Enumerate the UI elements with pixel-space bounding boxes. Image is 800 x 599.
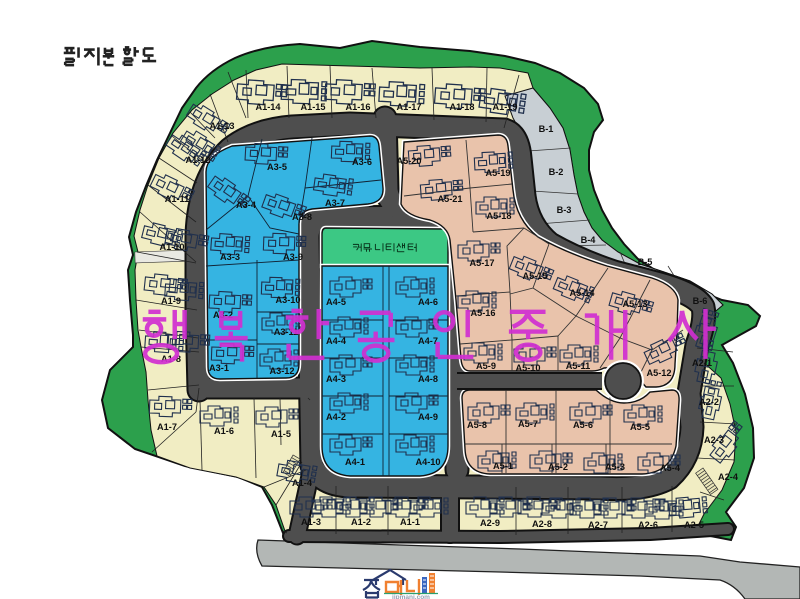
svg-text:A2-6: A2-6 [638, 520, 658, 530]
svg-text:A5-5: A5-5 [630, 422, 650, 432]
svg-text:A3-4: A3-4 [236, 200, 257, 210]
svg-text:A1-19: A1-19 [492, 102, 517, 112]
svg-text:A3-9: A3-9 [283, 252, 303, 262]
svg-text:A5-10: A5-10 [515, 363, 540, 373]
svg-text:A3-5: A3-5 [267, 162, 287, 172]
svg-text:A5-1: A5-1 [493, 461, 513, 471]
svg-text:A1-1: A1-1 [400, 517, 420, 527]
svg-text:A4-10: A4-10 [415, 457, 440, 467]
svg-text:A2-2: A2-2 [699, 397, 719, 407]
svg-text:A5-7: A5-7 [518, 419, 538, 429]
svg-text:A5-18: A5-18 [486, 211, 511, 221]
svg-text:A1-14: A1-14 [255, 102, 281, 112]
svg-text:B-1: B-1 [539, 124, 554, 134]
svg-text:A5-4: A5-4 [660, 463, 681, 473]
svg-text:A5-16: A5-16 [470, 308, 495, 318]
svg-text:A2-5: A2-5 [684, 520, 704, 530]
svg-text:A2-1: A2-1 [692, 358, 712, 368]
svg-text:A4-4: A4-4 [326, 336, 347, 346]
svg-text:A3-12: A3-12 [269, 366, 294, 376]
svg-text:A4-5: A4-5 [326, 297, 346, 307]
svg-text:B-5: B-5 [638, 257, 653, 267]
svg-text:A5-19: A5-19 [485, 168, 510, 178]
svg-text:A4-8: A4-8 [418, 374, 438, 384]
svg-text:A1-15: A1-15 [300, 102, 325, 112]
svg-text:A1-13: A1-13 [209, 121, 234, 131]
svg-text:A3-7: A3-7 [325, 198, 345, 208]
svg-text:A1-3: A1-3 [301, 517, 321, 527]
svg-text:A5-14: A5-14 [569, 288, 595, 298]
svg-text:A3-6: A3-6 [352, 157, 372, 167]
svg-text:A4-7: A4-7 [418, 336, 438, 346]
svg-text:A2-4: A2-4 [718, 472, 739, 482]
svg-text:A5-15: A5-15 [522, 271, 547, 281]
svg-text:B-2: B-2 [549, 167, 564, 177]
svg-text:A2-9: A2-9 [480, 518, 500, 528]
svg-text:A1-4: A1-4 [292, 478, 313, 488]
svg-text:A1-6: A1-6 [214, 426, 234, 436]
svg-text:A4-3: A4-3 [326, 374, 346, 384]
svg-text:A4-6: A4-6 [418, 297, 438, 307]
svg-text:A5-21: A5-21 [437, 194, 462, 204]
svg-text:A1-7: A1-7 [157, 422, 177, 432]
svg-text:A1-12: A1-12 [185, 155, 210, 165]
svg-text:A1-16: A1-16 [345, 102, 370, 112]
svg-text:A3-8: A3-8 [292, 212, 312, 222]
svg-text:A1-17: A1-17 [396, 102, 421, 112]
svg-text:A5-8: A5-8 [467, 420, 487, 430]
svg-text:A5-9: A5-9 [476, 361, 496, 371]
svg-text:A5-6: A5-6 [573, 420, 593, 430]
svg-text:A1-9: A1-9 [161, 296, 181, 306]
svg-text:A3-1: A3-1 [209, 363, 229, 373]
svg-text:A3-10: A3-10 [275, 295, 300, 305]
svg-text:A5-13: A5-13 [622, 299, 647, 309]
svg-text:A1-11: A1-11 [165, 194, 190, 204]
svg-text:A1-5: A1-5 [271, 429, 291, 439]
svg-text:A3-3: A3-3 [220, 252, 240, 262]
svg-text:A5-12: A5-12 [646, 368, 671, 378]
svg-text:A2-7: A2-7 [588, 520, 608, 530]
svg-text:A1-2: A1-2 [351, 517, 371, 527]
svg-text:A5-3: A5-3 [605, 462, 625, 472]
svg-text:A5-11: A5-11 [566, 361, 591, 371]
svg-text:A1-18: A1-18 [449, 102, 474, 112]
svg-text:A4-2: A4-2 [326, 412, 346, 422]
svg-text:A1-10: A1-10 [159, 242, 184, 252]
svg-text:B-6: B-6 [693, 296, 708, 306]
svg-text:B-3: B-3 [557, 205, 572, 215]
svg-text:jipmani.com: jipmani.com [391, 594, 430, 599]
svg-text:A4-1: A4-1 [345, 457, 365, 467]
svg-text:A5-20: A5-20 [396, 156, 421, 166]
svg-text:A4-9: A4-9 [418, 412, 438, 422]
svg-text:B-4: B-4 [581, 235, 597, 245]
svg-text:A2-8: A2-8 [532, 519, 552, 529]
svg-text:A5-17: A5-17 [469, 258, 494, 268]
svg-text:A5-2: A5-2 [548, 462, 568, 472]
svg-text:A2-3: A2-3 [704, 435, 724, 445]
